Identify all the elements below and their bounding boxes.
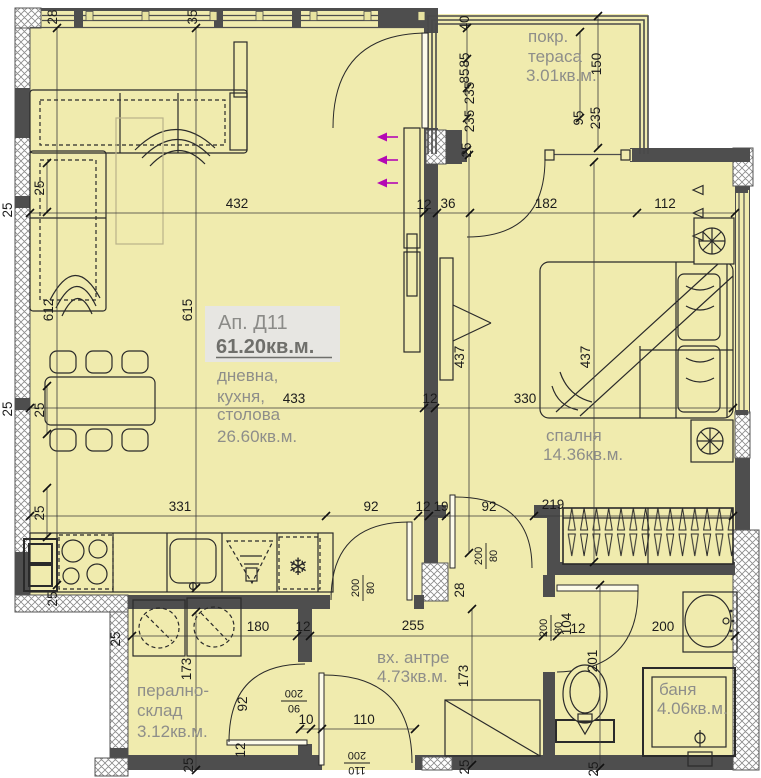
dimension-label: 437 — [578, 346, 593, 369]
room-label: склад — [137, 701, 183, 720]
dimension-label: 12 — [416, 197, 431, 212]
room-label: 14.36кв.м. — [543, 445, 623, 464]
dimension-label: 255 — [402, 618, 425, 633]
vent-shaft — [422, 563, 448, 601]
dimension-label: 95 — [571, 110, 586, 125]
dimension-label: 85 — [457, 52, 472, 67]
radiator-icon — [691, 420, 733, 462]
unit-title-block: Ап. Д11 61.20кв.м. — [205, 306, 340, 362]
unit-name: Ап. Д11 — [218, 312, 288, 334]
dimension-label: 235 — [462, 82, 477, 105]
dimension-label: 173 — [456, 665, 471, 688]
room-label: спалня — [546, 426, 602, 445]
wardrobe — [563, 508, 733, 564]
hatched-wall — [15, 595, 128, 612]
hatched-wall — [422, 757, 452, 770]
dimension-label: 12 — [415, 499, 430, 514]
dimension-label: 612 — [41, 299, 56, 322]
dimension-label: 615 — [180, 299, 195, 322]
room-label: кухня, — [217, 387, 265, 406]
window-mullion — [418, 12, 425, 21]
door-width: 110 — [348, 764, 366, 776]
radiator-icon — [694, 218, 734, 264]
dimension-label: 25 — [32, 505, 47, 520]
dimension-label: 219 — [542, 497, 565, 512]
door-width: 200 — [473, 547, 485, 565]
door-height: 200 — [285, 687, 303, 699]
hatched-wall — [15, 8, 41, 28]
dimension-label: 92 — [481, 499, 496, 514]
dimension-label: 35 — [185, 9, 200, 24]
dimension-label: 12 — [233, 742, 248, 757]
dimension-label: 25 — [45, 591, 60, 606]
dimension-label: 180 — [247, 619, 270, 634]
window-mullion — [256, 12, 263, 21]
door-height: 80 — [553, 622, 565, 634]
hatched-wall — [735, 412, 750, 458]
unit-area: 61.20кв.м. — [216, 336, 314, 358]
dimension-label: 25 — [586, 761, 601, 776]
door-height: 80 — [488, 550, 500, 562]
dimension-label: 28 — [452, 582, 467, 597]
door-width: 200 — [350, 579, 362, 597]
dimension-label: 36 — [440, 196, 455, 211]
room-label: 3.01кв.м. — [526, 66, 597, 85]
door-width: 200 — [538, 619, 550, 637]
hatched-wall — [95, 758, 128, 776]
dimension-label: 40 — [457, 15, 472, 30]
dimension-label: 182 — [535, 196, 558, 211]
dimension-label: 112 — [654, 196, 676, 211]
window-mullion — [364, 12, 371, 21]
floor-plan: ❄ — [0, 0, 761, 778]
room-label: баня — [659, 680, 696, 699]
dimension-label: 173 — [179, 658, 194, 681]
dimension-label: 19 — [433, 499, 448, 514]
window-mullion — [86, 12, 93, 21]
room-label: вх. антре — [377, 648, 450, 667]
room-label: 26.60кв.м. — [217, 427, 297, 446]
svg-text:❄: ❄ — [288, 554, 308, 581]
room-label: столова — [217, 405, 281, 424]
dimension-label: 235 — [588, 107, 603, 130]
dimension-label: 25 — [459, 142, 474, 157]
dimension-label: 331 — [169, 499, 192, 514]
dimension-label: 235 — [462, 110, 477, 133]
dimension-label: 432 — [226, 196, 249, 211]
dimension-label: 433 — [283, 391, 306, 406]
dimension-label: 92 — [363, 499, 378, 514]
door-height: 200 — [348, 749, 366, 761]
room-label: тераса — [528, 47, 582, 66]
dimension-label: 25 — [457, 759, 472, 774]
dimension-label: 85 — [457, 68, 472, 83]
window-mullion — [310, 12, 317, 21]
room-label: 4.73кв.м. — [377, 667, 448, 686]
dimension-label: 200 — [652, 619, 675, 634]
dimension-label: 28 — [45, 9, 60, 24]
dimension-label: 25 — [108, 631, 123, 646]
dimension-label: 330 — [514, 391, 537, 406]
pillow — [678, 346, 720, 412]
dimension-label: 12 — [422, 391, 437, 406]
dimension-label: 25 — [32, 402, 47, 417]
door-width: 90 — [288, 702, 300, 714]
dimension-label: 25 — [32, 180, 47, 195]
room-label: покр. — [528, 27, 568, 46]
dimension-label: 25 — [0, 401, 15, 416]
room-label: 3.12кв.м. — [137, 722, 208, 741]
window-mullion — [142, 12, 149, 21]
dimension-label: 12 — [295, 619, 310, 634]
door-height: 80 — [365, 582, 377, 594]
room-label: перално- — [137, 681, 209, 700]
dimension-label: 437 — [452, 346, 467, 369]
dimension-label: 25 — [181, 757, 196, 772]
dimension-label: 92 — [235, 696, 250, 711]
dimension-label: 201 — [585, 650, 600, 673]
dimension-label: 25 — [0, 202, 15, 217]
room-label: дневна, — [217, 366, 278, 385]
dimension-label: 110 — [353, 712, 375, 727]
window-mullion — [210, 12, 217, 21]
room-label: 4.06кв.м. — [657, 699, 728, 718]
